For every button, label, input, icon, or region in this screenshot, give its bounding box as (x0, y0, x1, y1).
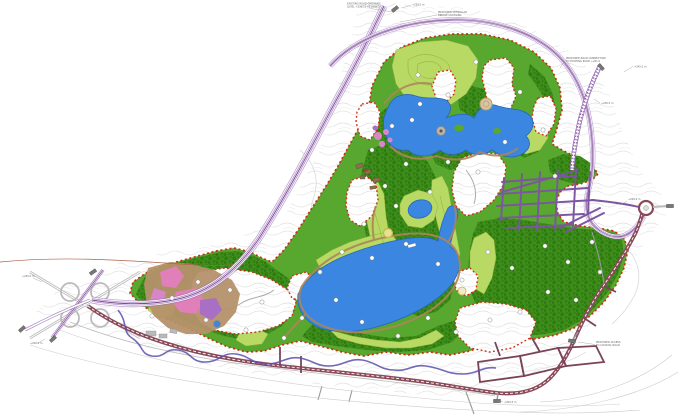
keyed-note-marker (541, 128, 545, 132)
keyed-note-marker (360, 320, 364, 324)
keyed-note-marker (416, 73, 420, 77)
keyed-note-marker (566, 260, 570, 264)
keyed-note-marker (282, 336, 286, 340)
annotation-label: +228.4 m (628, 197, 641, 201)
map-svg: EXISTING ROAD CROSSINGLEVEL +236.50 RETA… (0, 0, 680, 418)
keyed-note-marker (396, 334, 400, 338)
keyed-note-marker (390, 124, 394, 128)
keyed-note-marker (503, 140, 507, 144)
annotation-label: TO COASTAL ROAD (596, 343, 620, 347)
annotation-label: +209.5 m (504, 400, 517, 404)
keyed-note-marker (383, 184, 387, 188)
island (454, 125, 464, 132)
keyed-note-marker (404, 162, 408, 166)
keyed-note-marker (426, 316, 430, 320)
keyed-note-marker (170, 296, 174, 300)
keyed-note-marker (340, 250, 344, 254)
keyed-note-marker (362, 222, 366, 226)
keyed-note-marker (518, 310, 522, 314)
keyed-note-marker (418, 102, 422, 106)
keyed-note-marker (204, 318, 208, 322)
keyed-note-marker (518, 90, 522, 94)
annotation-label: +245.0 m (634, 65, 647, 69)
keyed-note-marker (428, 190, 432, 194)
keyed-note-marker (574, 298, 578, 302)
keyed-note-marker (476, 170, 480, 174)
keyed-note-marker (410, 118, 414, 122)
keyed-note-marker (543, 244, 547, 248)
keyed-note-marker (510, 266, 514, 270)
keyed-note-marker (228, 288, 232, 292)
keyed-note-marker (446, 160, 450, 164)
keyed-note-marker (244, 328, 248, 332)
keyed-note-marker (553, 174, 557, 178)
keyed-note-marker (394, 204, 398, 208)
annotation-label: LEVEL +236.50 RETAINED (347, 5, 380, 9)
annotation-label: BRIDGE CROSSING (438, 13, 462, 17)
annotation-label: +236.5 m (601, 101, 614, 105)
annotation-label: +226.0 m (30, 341, 43, 345)
keyed-note-marker (436, 262, 440, 266)
keyed-note-marker (488, 318, 492, 322)
keyed-note-marker (486, 250, 490, 254)
keyed-note-marker (196, 280, 200, 284)
keyed-note-marker (370, 256, 374, 260)
keyed-note-marker (454, 330, 458, 334)
keyed-note-marker (260, 300, 264, 304)
annotation-label: TO EXISTING ROAD +241.0 (566, 59, 601, 63)
keyed-note-marker (474, 60, 478, 64)
keyed-note-marker (598, 270, 602, 274)
masterplan-canvas: EXISTING ROAD CROSSINGLEVEL +236.50 RETA… (0, 0, 680, 418)
keyed-note-marker (370, 148, 374, 152)
keyed-note-marker (590, 240, 594, 244)
keyed-note-marker (446, 93, 450, 97)
annotation-label: +230.0 m (22, 274, 35, 278)
keyed-note-marker (546, 290, 550, 294)
keyed-note-marker (150, 314, 154, 318)
keyed-note-marker (300, 316, 304, 320)
keyed-note-marker (318, 270, 322, 274)
keyed-note-marker (460, 278, 464, 282)
keyed-note-marker (334, 298, 338, 302)
annotation-label: +238.0 m (412, 3, 425, 7)
keyed-note-marker (404, 242, 408, 246)
island (493, 128, 501, 134)
